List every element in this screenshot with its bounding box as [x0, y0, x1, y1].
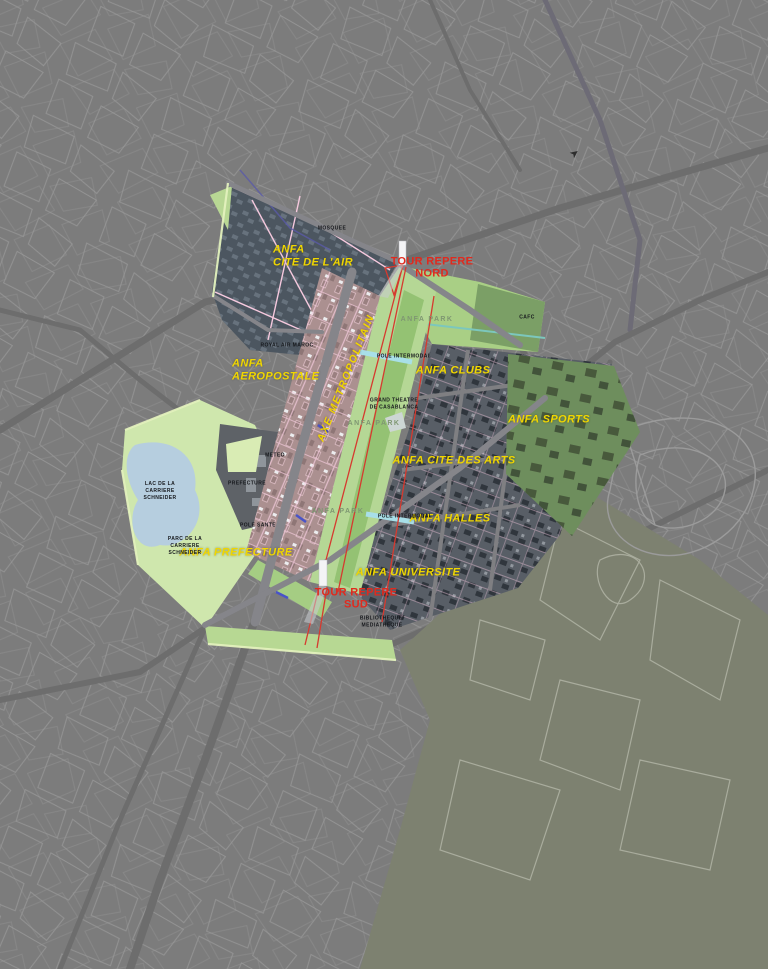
label-anfa-cite-de-lair: ANFA CITE DE L'AIR [273, 243, 353, 268]
north-arrow-icon: ➤ [567, 146, 582, 162]
label-mosquee: MOSQUEE [318, 226, 346, 233]
label-anfa-cite-des-arts: ANFA CITE DES ARTS [393, 455, 516, 468]
label-anfa-park-north: ANFA PARK [401, 316, 454, 324]
map-labels: ANFA CITE DE L'AIRANFA AEROPOSTALEANFA C… [0, 0, 768, 969]
label-anfa-park-south: ANFA PARK [312, 508, 365, 516]
label-anfa-park-center: ANFA PARK [348, 420, 401, 428]
label-cafc: CAFC [519, 315, 535, 322]
label-axe-metropolitain: AXE METROPOLITAIN [315, 313, 377, 444]
label-tour-repere-sud: TOUR REPERE SUD [315, 587, 398, 610]
label-prefecture: PREFECTURE [228, 481, 266, 488]
label-pole-intermodal-north: POLE INTERMODAL [377, 354, 431, 361]
label-tour-repere-nord: TOUR REPERE NORD [391, 256, 474, 279]
anfa-masterplan-map: ANFA CITE DE L'AIRANFA AEROPOSTALEANFA C… [0, 0, 768, 969]
label-anfa-clubs: ANFA CLUBS [416, 365, 490, 378]
label-pole-intermodal-south: POLE INTERMODAL [378, 514, 432, 521]
label-lac-carriere-schneider: LAC DE LA CARRIERE SCHNEIDER [143, 481, 176, 501]
label-anfa-prefecture: ANFA PREFECTURE [179, 547, 292, 560]
label-bibliotheque: BIBLIOTHEQUE/ MEDIATHEQUE [360, 615, 404, 629]
label-anfa-universite: ANFA UNIVERSITE [356, 567, 461, 580]
label-anfa-halles: ANFA HALLES [410, 513, 491, 526]
label-royal-air-maroc: ROYAL AIR MAROC [260, 343, 313, 350]
label-grand-theatre: GRAND THEATRE DE CASABLANCA [370, 397, 419, 411]
label-parc-carriere-schneider: PARC DE LA CARRIERE SCHNEIDER [168, 536, 202, 556]
label-anfa-aeropostale: ANFA AEROPOSTALE [232, 357, 319, 382]
label-anfa-sports: ANFA SPORTS [508, 414, 590, 427]
label-pole-sante: POLE SANTE [240, 523, 276, 530]
label-meteo: METEO [265, 453, 285, 460]
